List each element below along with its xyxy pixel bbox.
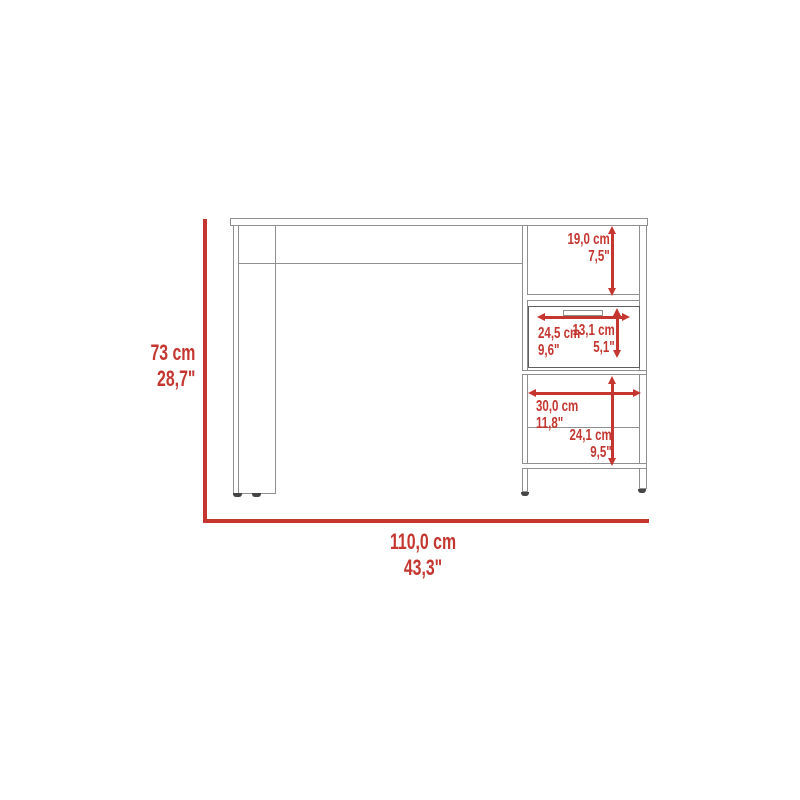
drawer-width-arrow — [545, 316, 622, 319]
top-shelf-height-inch: 7,5" — [568, 248, 610, 265]
drawer-height-arrow — [616, 316, 619, 350]
lower-shelf-width-cm: 30,0 cm — [536, 398, 578, 415]
shelf-unit-right-foot — [638, 489, 646, 493]
desk-tabletop — [230, 218, 648, 226]
left-panel-foot-2 — [252, 493, 261, 497]
desk-left-side-panel — [233, 226, 276, 494]
desk-left-panel-edge-line — [238, 226, 239, 493]
top-shelf-height-arrow — [611, 234, 614, 288]
lower-shelf-height-cm: 24,1 cm — [570, 427, 612, 444]
top-shelf-height-cm: 19,0 cm — [568, 231, 610, 248]
top-shelf-height-label: 19,0 cm 7,5" — [568, 231, 610, 265]
lower-shelf-height-label: 24,1 cm 9,5" — [570, 427, 612, 461]
overall-width-label: 110,0 cm 43,3" — [351, 529, 495, 581]
lower-shelf-height-inch: 9,5" — [570, 444, 612, 461]
drawer-height-label: 13,1 cm 5,1" — [573, 322, 615, 356]
lower-shelf-width-arrow — [536, 392, 633, 395]
shelf-unit-left-foot — [521, 492, 529, 496]
desk-apron-line — [238, 263, 523, 264]
overall-width-cm: 110,0 cm — [351, 529, 495, 555]
height-dimension-line — [203, 219, 207, 523]
drawer-height-cm: 13,1 cm — [573, 322, 615, 339]
overall-height-inch: 28,7" — [150, 366, 195, 392]
overall-height-cm: 73 cm — [150, 340, 195, 366]
overall-width-inch: 43,3" — [351, 555, 495, 581]
left-panel-foot-1 — [233, 493, 242, 497]
shelf-under-top-compartment — [527, 294, 639, 301]
drawer-height-inch: 5,1" — [573, 339, 615, 356]
shelf-under-drawer — [522, 370, 646, 375]
width-dimension-line — [203, 519, 649, 523]
overall-height-label: 73 cm 28,7" — [150, 340, 195, 392]
shelf-unit-right-panel — [639, 226, 647, 489]
desk-dimension-diagram: 73 cm 28,7" 110,0 cm 43,3" 19,0 cm 7,5" … — [0, 0, 800, 800]
bottom-shelf — [522, 463, 646, 469]
